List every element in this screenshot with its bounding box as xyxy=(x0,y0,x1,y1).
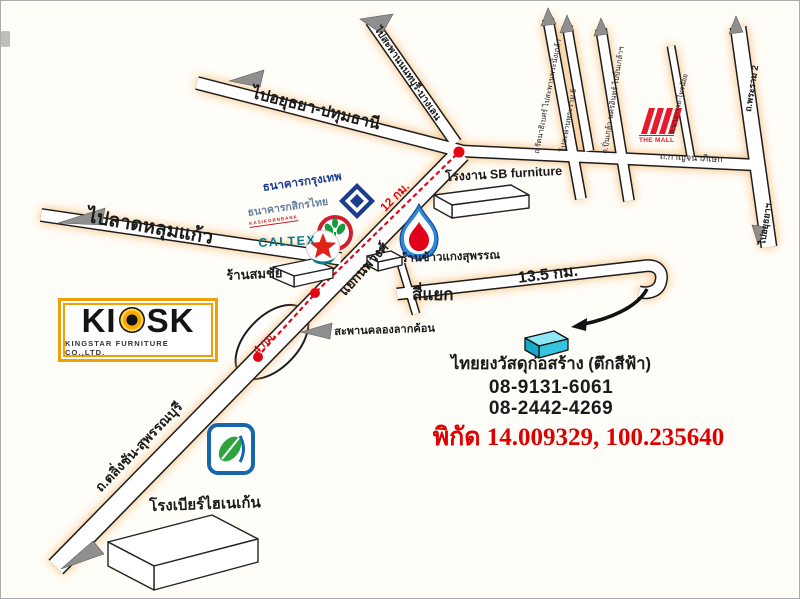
label-the-mall: THE MALL xyxy=(639,135,674,144)
sb-factory-building xyxy=(434,185,529,218)
destination-building xyxy=(525,331,568,358)
kiosk-logo: KI SK KINGSTAR FURNITURE CO.,LTD. xyxy=(58,298,218,362)
destination-phone-2: 08-2442-4269 xyxy=(391,399,711,420)
bangkok-bank-logo xyxy=(339,183,375,219)
kiosk-o-icon xyxy=(119,307,145,333)
route-dot-main-junction xyxy=(454,147,465,158)
destination-phone-1: 08-9131-6061 xyxy=(391,378,711,399)
destination-name: ไทยยงวัสดุก่อสร้าง (ตึกสีฟ้า) xyxy=(391,355,711,373)
kiosk-subtitle: KINGSTAR FURNITURE CO.,LTD. xyxy=(65,339,211,357)
arrow-road-c xyxy=(594,18,608,36)
kiosk-brand: KI SK xyxy=(82,304,195,337)
destination-coordinates: พิกัด 14.009329, 100.235640 xyxy=(396,424,761,452)
label-somchai-shop: ร้านสมชัย xyxy=(226,266,283,283)
kiosk-brand-left: KI xyxy=(82,304,117,337)
arrow-road-a xyxy=(541,8,556,26)
route-dot-nopphawong xyxy=(310,288,320,298)
kiosk-logo-inner: KI SK KINGSTAR FURNITURE CO.,LTD. xyxy=(63,303,213,357)
arrow-rama2-up xyxy=(729,16,743,34)
arrow-road-b xyxy=(560,15,574,33)
uturn-arrow xyxy=(571,289,647,331)
direction-map: ไปอยุธยา-ปทุมธานี ไปสะพานนนทบุรี-บางเลน … xyxy=(0,0,800,599)
arrow-ayutthaya xyxy=(229,70,264,87)
heineken-brewery-building xyxy=(108,515,258,590)
bangchak-logo xyxy=(209,425,253,473)
scan-smudge xyxy=(1,31,10,47)
junction-label-si-yaek: สี่แยก xyxy=(412,286,454,305)
kiosk-brand-right: SK xyxy=(147,304,195,337)
